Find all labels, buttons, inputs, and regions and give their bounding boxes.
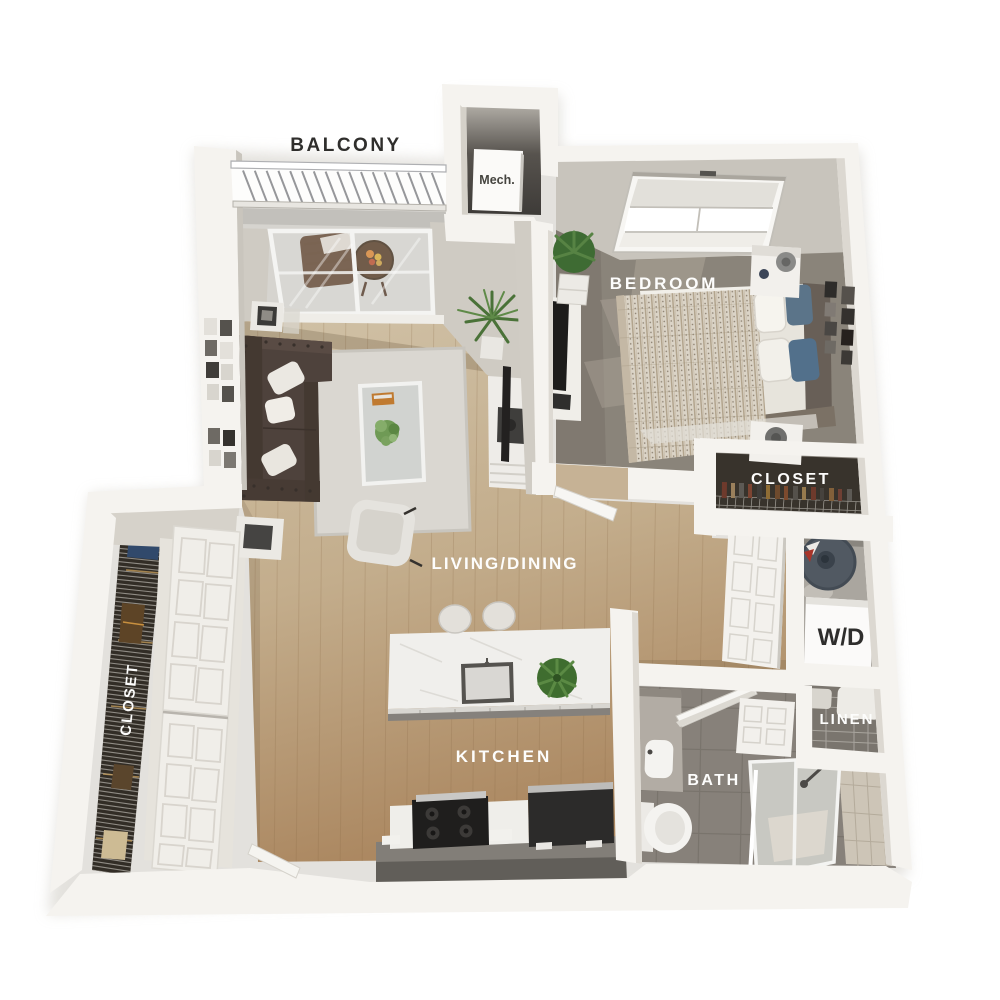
svg-text:KITCHEN: KITCHEN	[456, 747, 553, 766]
svg-text:BEDROOM: BEDROOM	[610, 274, 718, 293]
svg-text:Mech.: Mech.	[479, 173, 514, 187]
svg-text:LINEN: LINEN	[820, 711, 875, 728]
svg-text:CLOSET: CLOSET	[751, 471, 831, 488]
svg-text:LIVING/DINING: LIVING/DINING	[432, 554, 579, 573]
svg-text:W/D: W/D	[818, 624, 865, 651]
svg-text:BALCONY: BALCONY	[290, 135, 401, 156]
svg-text:BATH: BATH	[687, 772, 740, 789]
